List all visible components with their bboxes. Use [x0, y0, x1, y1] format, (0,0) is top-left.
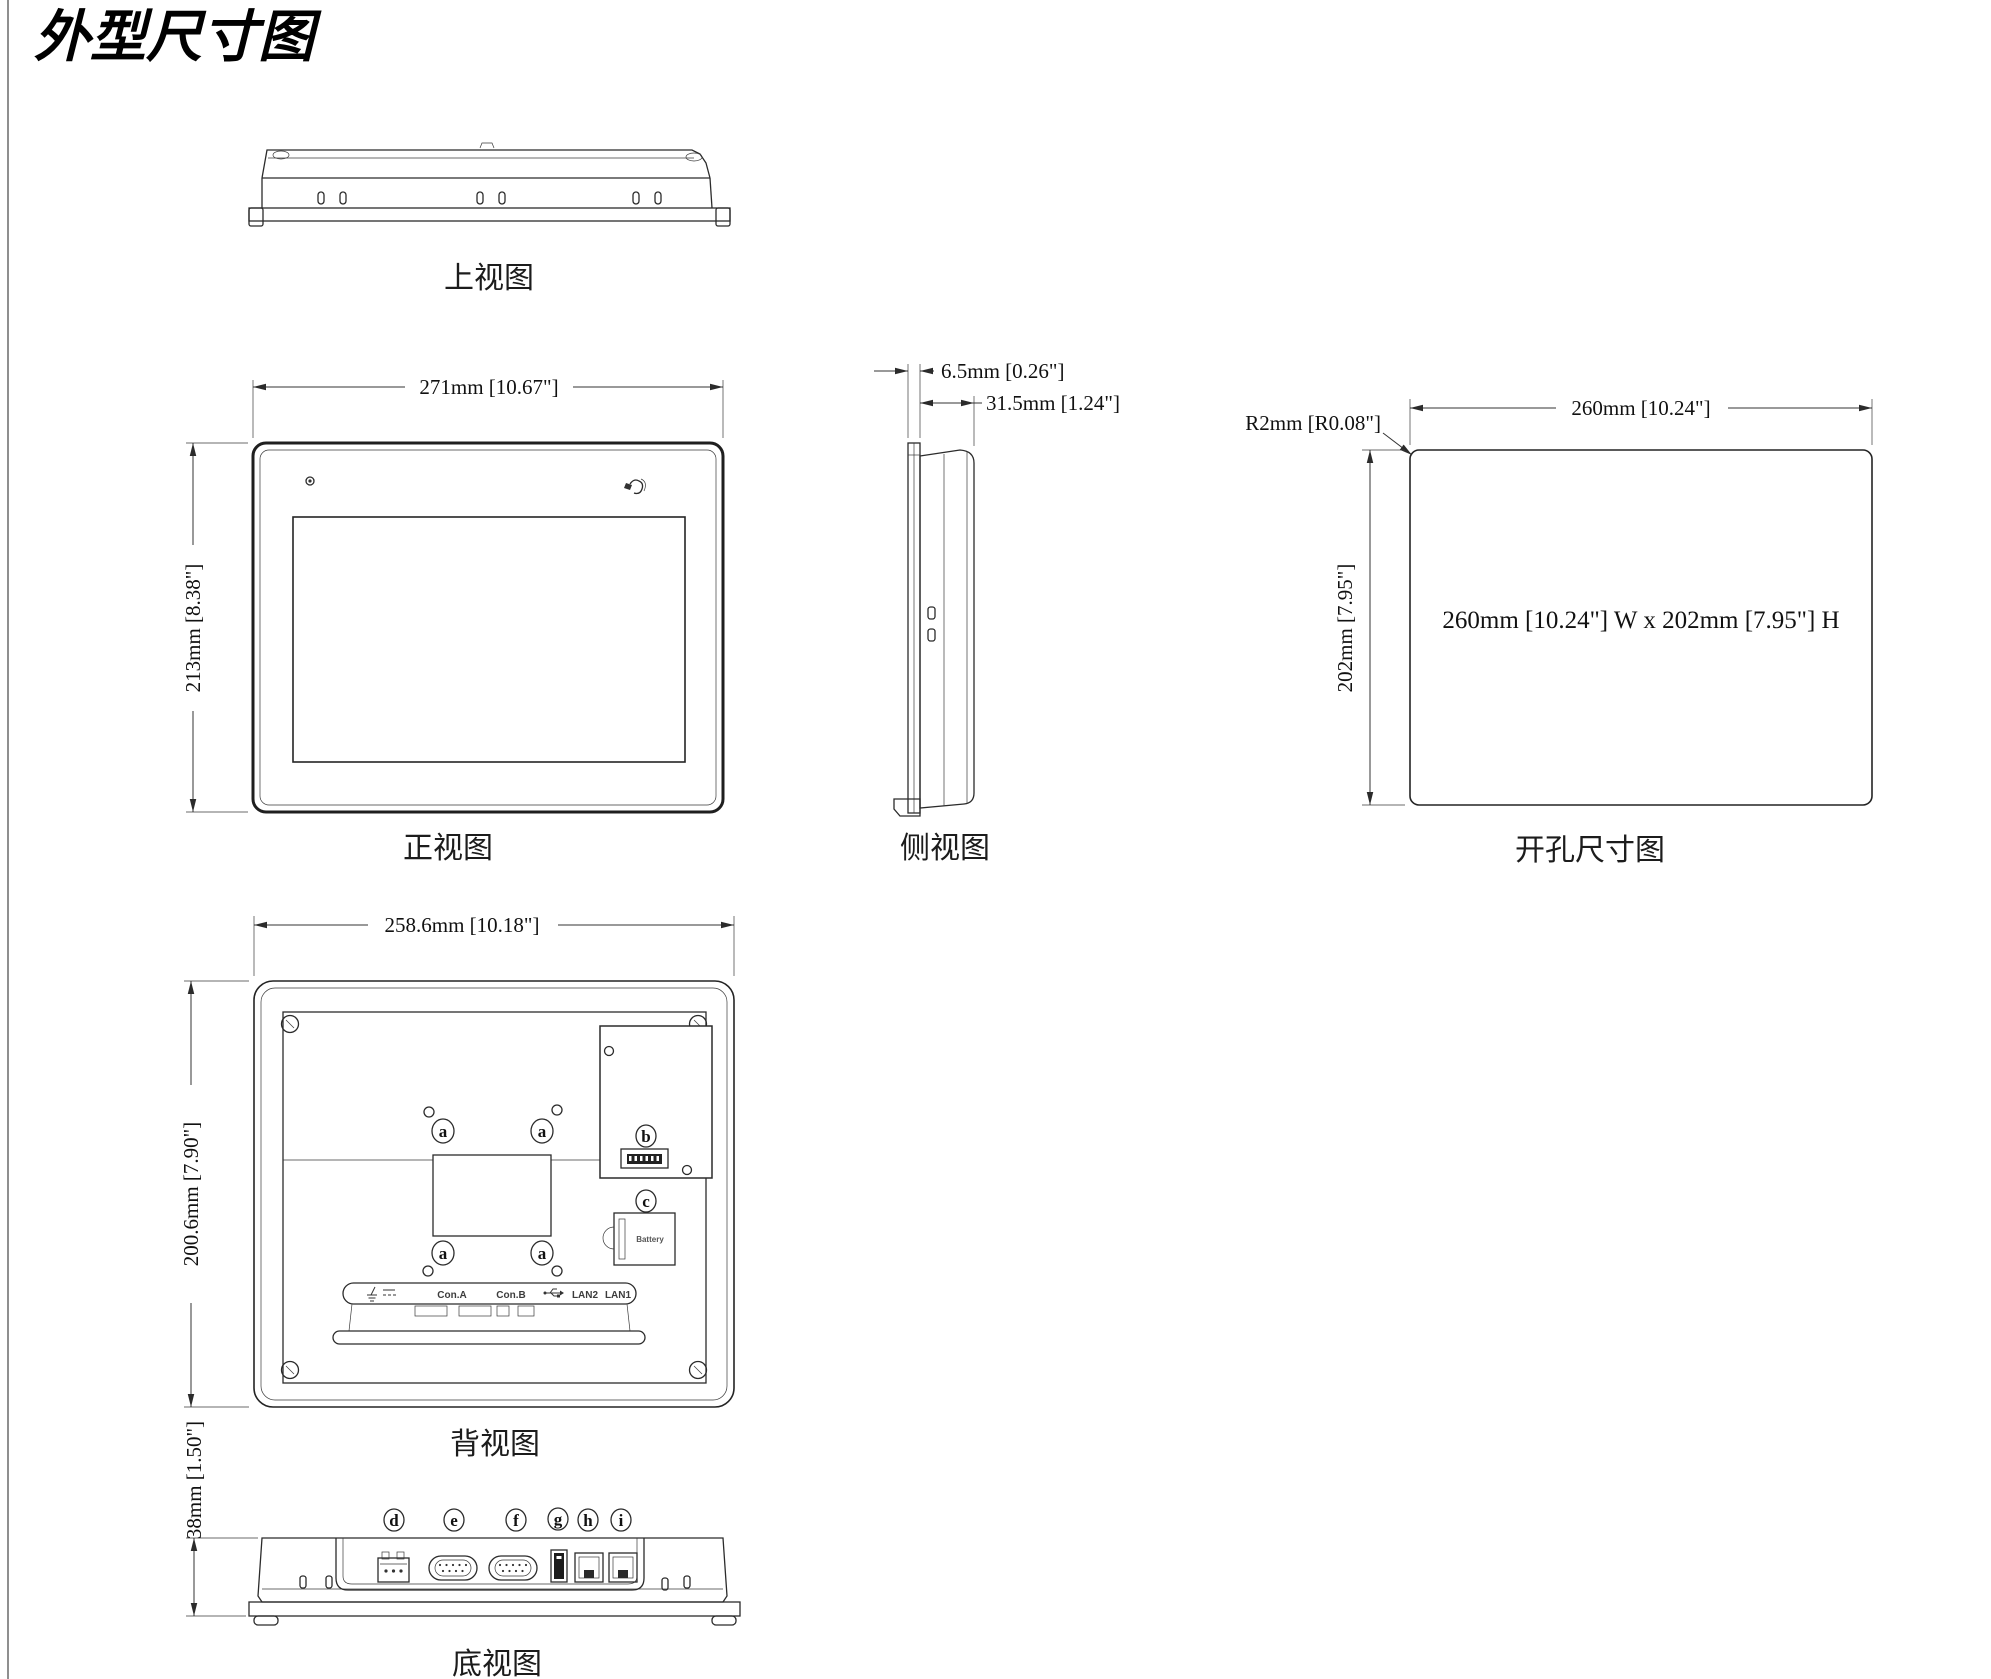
back-width-text: 258.6mm [10.18"] [385, 913, 540, 937]
back-connector-cutouts [415, 1306, 534, 1316]
back-stand-bar [333, 1304, 645, 1344]
bottom-body [258, 1538, 727, 1602]
svg-text:a: a [439, 1244, 448, 1263]
side-depth-dimension: 31.5mm [1.24"] [920, 391, 1120, 446]
front-screen [293, 517, 685, 762]
port-label-con-b: Con.B [496, 1290, 525, 1301]
top-view-vent-slots [318, 192, 661, 204]
usb-port [551, 1550, 567, 1582]
svg-text:b: b [641, 1127, 650, 1146]
front-width-dimension: 271mm [10.67"] [253, 374, 723, 438]
cutout-height-dimension: 202mm [7.95"] [1333, 450, 1405, 805]
callout-c: c [636, 1190, 656, 1212]
svg-text:e: e [450, 1511, 458, 1530]
port-label-con-a: Con.A [437, 1290, 466, 1301]
power-terminal-connector [378, 1552, 409, 1582]
vesa-callout-a: a [531, 1241, 553, 1265]
dimension-drawing-page: 外型尺寸图 上视图 [0, 0, 1991, 1679]
callout-d: d [384, 1509, 404, 1531]
side-view: 6.5mm [0.26"] 31.5mm [1.24"] 侧视图 [874, 359, 1120, 866]
svg-text:g: g [554, 1510, 563, 1529]
callout-i: i [611, 1509, 631, 1531]
db9-connector-com-b [489, 1556, 537, 1580]
svg-text:a: a [538, 1244, 547, 1263]
svg-text:a: a [538, 1122, 547, 1141]
callout-e: e [444, 1509, 464, 1531]
front-view-label: 正视图 [403, 831, 493, 866]
bottom-mount-plate [249, 1602, 740, 1616]
cutout-view: 260mm [10.24"] R2mm [R0.08"] 202mm [7.95… [1245, 396, 1872, 868]
side-body [920, 450, 974, 808]
dip-switch-compartment: b [600, 1026, 712, 1178]
vesa-mount-area: a a a a [283, 1105, 600, 1276]
vesa-callout-a: a [432, 1119, 454, 1143]
db9-connector-com-a [429, 1556, 477, 1580]
battery-area: c Battery [603, 1190, 675, 1265]
cutout-width-dimension: 260mm [10.24"] [1410, 396, 1872, 445]
callout-f: f [506, 1509, 526, 1531]
svg-text:i: i [619, 1511, 624, 1530]
back-view-label: 背视图 [450, 1427, 540, 1462]
bottom-callouts: d e f g h i [384, 1508, 631, 1531]
svg-text:d: d [389, 1511, 399, 1530]
top-view-label: 上视图 [444, 261, 534, 296]
top-view-corner-detail [686, 153, 702, 161]
rj45-port-lan2 [575, 1553, 603, 1582]
front-height-text: 213mm [8.38"] [181, 564, 205, 693]
callout-h: h [578, 1509, 598, 1531]
page-title: 外型尺寸图 [34, 4, 322, 70]
front-bezel-outline [253, 443, 723, 812]
bottom-view-label: 底视图 [452, 1647, 542, 1679]
vesa-callout-a: a [432, 1241, 454, 1265]
top-view: 上视图 [249, 143, 730, 296]
front-view: 271mm [10.67"] 213mm [8.38"] 正视图 [181, 374, 723, 866]
cutout-view-label: 开孔尺寸图 [1515, 833, 1665, 868]
svg-text:h: h [583, 1511, 593, 1530]
back-height-dimension: 200.6mm [7.90"] [179, 981, 249, 1407]
back-width-dimension: 258.6mm [10.18"] [254, 912, 734, 976]
port-label-lan2: LAN2 [572, 1290, 599, 1301]
callout-g: g [548, 1508, 568, 1530]
bottom-height-dimension: 38mm [1.50"] [182, 1421, 258, 1616]
front-width-text: 271mm [10.67"] [419, 375, 558, 399]
cutout-height-text: 202mm [7.95"] [1333, 564, 1357, 693]
front-height-dimension: 213mm [8.38"] [181, 443, 248, 812]
bezel-logo-icon [624, 479, 645, 494]
top-view-bezel-bar [249, 208, 730, 221]
back-height-text: 200.6mm [7.90"] [179, 1122, 203, 1266]
side-bezel-text: 6.5mm [0.26"] [941, 359, 1064, 383]
vesa-callout-a: a [531, 1119, 553, 1143]
cutout-width-text: 260mm [10.24"] [1571, 396, 1710, 420]
svg-text:a: a [439, 1122, 448, 1141]
svg-text:c: c [642, 1192, 650, 1211]
drawing-svg: 外型尺寸图 上视图 [0, 0, 1991, 1679]
cutout-radius-text: R2mm [R0.08"] [1245, 411, 1381, 435]
usb-icon [544, 1289, 565, 1298]
port-label-lan1: LAN1 [605, 1290, 632, 1301]
rj45-port-lan1 [609, 1553, 637, 1582]
port-label-strip: Con.A Con.B LAN2 LAN1 [343, 1283, 636, 1304]
cutout-note: 260mm [10.24"] W x 202mm [7.95"] H [1442, 607, 1839, 634]
back-view: 258.6mm [10.18"] a a [179, 912, 734, 1462]
side-view-label: 侧视图 [900, 831, 990, 866]
battery-label: Battery [636, 1235, 664, 1244]
side-depth-text: 31.5mm [1.24"] [986, 391, 1120, 415]
cutout-radius-callout: R2mm [R0.08"] [1245, 411, 1412, 455]
bottom-height-text: 38mm [1.50"] [182, 1421, 206, 1539]
ground-icon [367, 1287, 396, 1301]
svg-text:f: f [513, 1511, 519, 1530]
vesa-center-rect [433, 1155, 551, 1236]
